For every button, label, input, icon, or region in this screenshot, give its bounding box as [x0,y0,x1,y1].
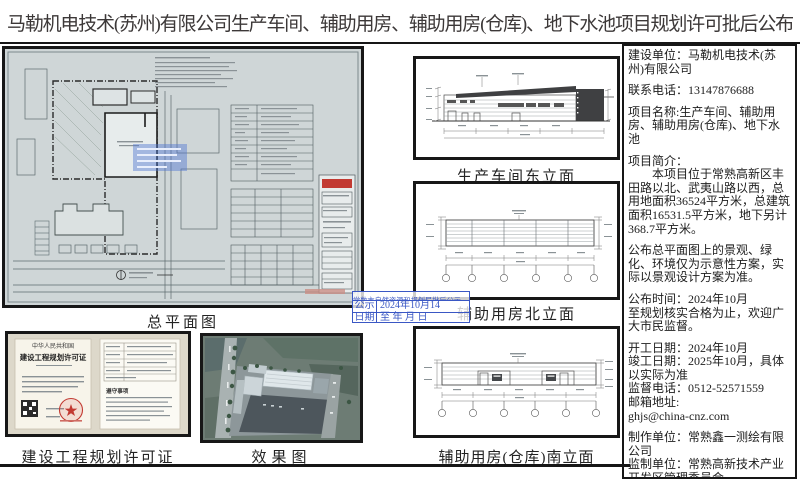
stamp-until-value: 至 年 月 日 [377,312,469,323]
info-paragraph: 联系电话：13147876688 [628,84,791,98]
elevation-south [413,326,620,438]
permit-country: 中华人民共和国 [32,342,74,350]
render-parking [239,394,331,434]
site-plan-drawing [2,46,364,308]
permit-notes-heading: 遵守事项 [106,387,129,395]
bottom-divider [0,464,630,467]
stamp-label-publish: 公示 [353,301,377,312]
info-paragraph: 项目简介： 本项目位于常熟高新区丰田路以北、武夷山路以西，总用地面积36524平… [628,155,791,237]
page-title: 马勒机电技术(苏州)有限公司生产车间、辅助用房、辅助用房(仓库)、地下水池项目规… [0,9,800,36]
stamp-row-1: 公示 2024年10月14 [353,301,469,312]
permit-certificate: 中华人民共和国 建设工程规划许可证 [5,331,191,437]
notice-page: 马勒机电技术(苏州)有限公司生产车间、辅助用房、辅助用房(仓库)、地下水池项目规… [0,0,800,483]
info-paragraph: 建设单位：马勒机电技术(苏州)有限公司 [628,49,791,76]
elevation-south-svg [416,329,617,435]
info-paragraph: 公布总平面图上的景观、绿化、环境仅为示意性方案，实际以景观设计方案为准。 [628,244,791,285]
info-paragraph: 项目名称:生产车间、辅助用房、辅助用房(仓库)、地下水池 [628,106,791,147]
permit-svg: 中华人民共和国 建设工程规划许可证 [8,334,188,434]
permit-title: 建设工程规划许可证 [19,353,87,362]
plan-title-block [319,175,355,293]
plan-building-aux2 [131,91,155,103]
plan-highlight [133,144,187,171]
elevation-north-svg [416,184,617,297]
render-svg [205,338,358,438]
stamp-date-value: 2024年10月14 [377,301,469,312]
project-info-panel: 建设单位：马勒机电技术(苏州)有限公司联系电话：13147876688项目名称:… [622,44,797,479]
plan-red-mark [305,289,345,294]
aerial-render [200,333,363,443]
elevation-east-svg [416,59,617,157]
info-paragraph-list: 建设单位：马勒机电技术(苏州)有限公司联系电话：13147876688项目名称:… [628,49,791,479]
permit-qr-code [21,400,38,417]
site-plan-caption: 总平面图 [2,311,364,332]
public-notice-stamp: 常熟市自然资源和规划局批后公示 公示 2024年10月14 日期 至 年 月 日 [352,291,470,323]
elev1-dark-block [576,89,604,121]
permit-red-seal [60,399,83,422]
stamp-label-date: 日期 [353,312,377,323]
info-paragraph: 开工日期：2024年10月 竣工日期：2025年10月，具体以实际为准 监督电话… [628,342,791,424]
info-paragraph: 制作单位：常熟鑫一测绘有限公司 监制单位：常熟高新技术产业开发区管理委员会 [628,431,791,479]
stamp-header: 常熟市自然资源和规划局批后公示 [353,292,469,301]
elevation-east [413,56,620,160]
elevation-north [413,181,620,300]
info-paragraph: 公布时间：2024年10月 至规划核实合格为止，欢迎广大市民监督。 [628,293,791,334]
plan-building-aux [93,89,127,105]
stamp-row-2: 日期 至 年 月 日 [353,312,469,323]
site-plan-svg [5,49,361,305]
